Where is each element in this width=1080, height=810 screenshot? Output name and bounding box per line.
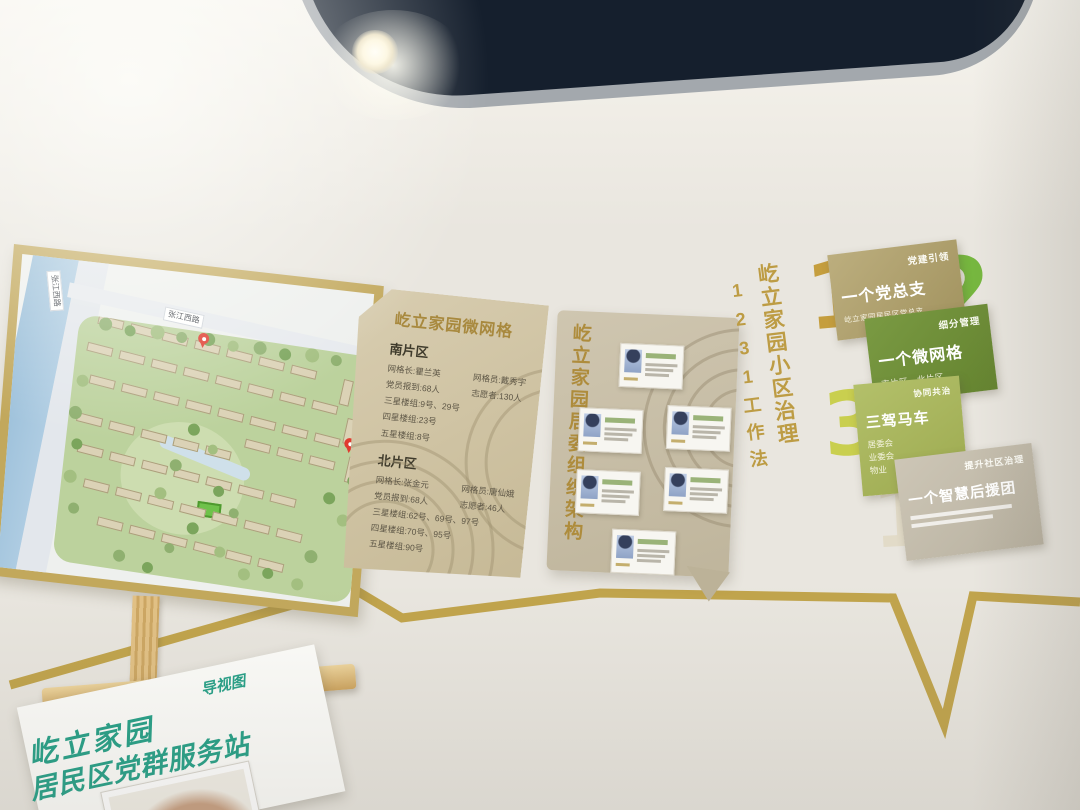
tree — [68, 502, 80, 515]
text-bar — [693, 430, 721, 434]
name-text-bar — [693, 415, 723, 421]
text-bar — [637, 549, 669, 553]
name-text-bar — [690, 477, 720, 483]
id-photo — [581, 475, 599, 499]
name-text-bar — [638, 539, 668, 545]
text-bar — [645, 363, 677, 367]
tree — [278, 348, 291, 362]
name-text-bar — [602, 479, 632, 485]
text-bar — [692, 435, 716, 439]
community-map-panel: 张江西路 张江西路 — [0, 244, 384, 617]
map-estate-area — [52, 314, 374, 605]
staff-id-card — [578, 407, 644, 454]
card-tag: 党建引领 — [837, 248, 950, 276]
governance-card-4: 提升社区治理 一个智慧后援团 — [894, 443, 1043, 561]
text-bar — [602, 489, 634, 493]
text-bar — [583, 441, 597, 445]
org-panel-face: 屹立家园居委组织架构 — [546, 310, 739, 578]
text-bar — [616, 563, 630, 567]
text-bar — [605, 427, 637, 431]
map-surface: 张江西路 张江西路 — [0, 254, 374, 607]
id-photo — [616, 535, 634, 559]
tree — [262, 567, 274, 580]
photo-of-community-wall-display: 张江西路 张江西路 屹立家园微网格 南片区网格长:瞿兰英网格员:戴秀宇党员报到:… — [0, 0, 1080, 810]
text-bar — [637, 554, 665, 558]
text-bar — [624, 377, 638, 381]
id-photo — [583, 413, 601, 437]
tree — [164, 542, 175, 553]
text-bar — [580, 503, 594, 507]
staff-id-card — [610, 529, 676, 576]
micro-grid-panel: 屹立家园微网格 南片区网格长:瞿兰英网格员:戴秀宇党员报到:68人志愿者:130… — [333, 286, 549, 586]
text-bar — [671, 439, 685, 443]
text-bar — [601, 499, 625, 503]
text-bar — [668, 501, 682, 505]
tree — [291, 578, 304, 592]
id-photo — [669, 473, 687, 497]
text-bar — [690, 497, 714, 501]
org-structure-panel: 屹立家园居委组织架构 — [546, 310, 739, 578]
staff-id-card — [575, 469, 641, 516]
text-bar — [604, 432, 632, 436]
tree — [237, 568, 250, 582]
card-tag: 细分管理 — [874, 313, 981, 340]
text-bar — [602, 494, 630, 498]
text-bar — [690, 492, 718, 496]
text-bar — [645, 368, 673, 372]
road-label: 张江西路 — [163, 306, 205, 328]
micro-grid-title: 屹立家园微网格 — [394, 306, 538, 345]
card-tag: 提升社区治理 — [904, 452, 1025, 480]
tree — [330, 354, 342, 367]
tree — [141, 561, 153, 574]
staff-id-card — [666, 405, 732, 452]
tree — [76, 374, 89, 388]
tree — [304, 549, 318, 564]
tree — [124, 325, 136, 338]
building — [339, 379, 354, 407]
id-photo — [624, 349, 642, 373]
text-bar — [693, 425, 725, 429]
text-bar — [604, 437, 628, 441]
card-tag: 协同共治 — [863, 384, 952, 404]
text-bar — [637, 559, 661, 563]
name-text-bar — [605, 417, 635, 423]
tree — [323, 491, 336, 505]
name-text-bar — [646, 353, 676, 359]
tree — [112, 549, 125, 563]
staff-id-card — [663, 467, 729, 514]
staff-id-card — [618, 343, 684, 390]
tree — [253, 341, 267, 356]
text-bar — [690, 487, 722, 491]
text-bar — [645, 373, 669, 377]
tree — [304, 347, 319, 363]
tree — [63, 469, 77, 484]
sign-tag: 导视图 — [199, 670, 247, 700]
id-photo — [671, 411, 689, 435]
card-main-text: 三驾马车 — [865, 404, 954, 433]
